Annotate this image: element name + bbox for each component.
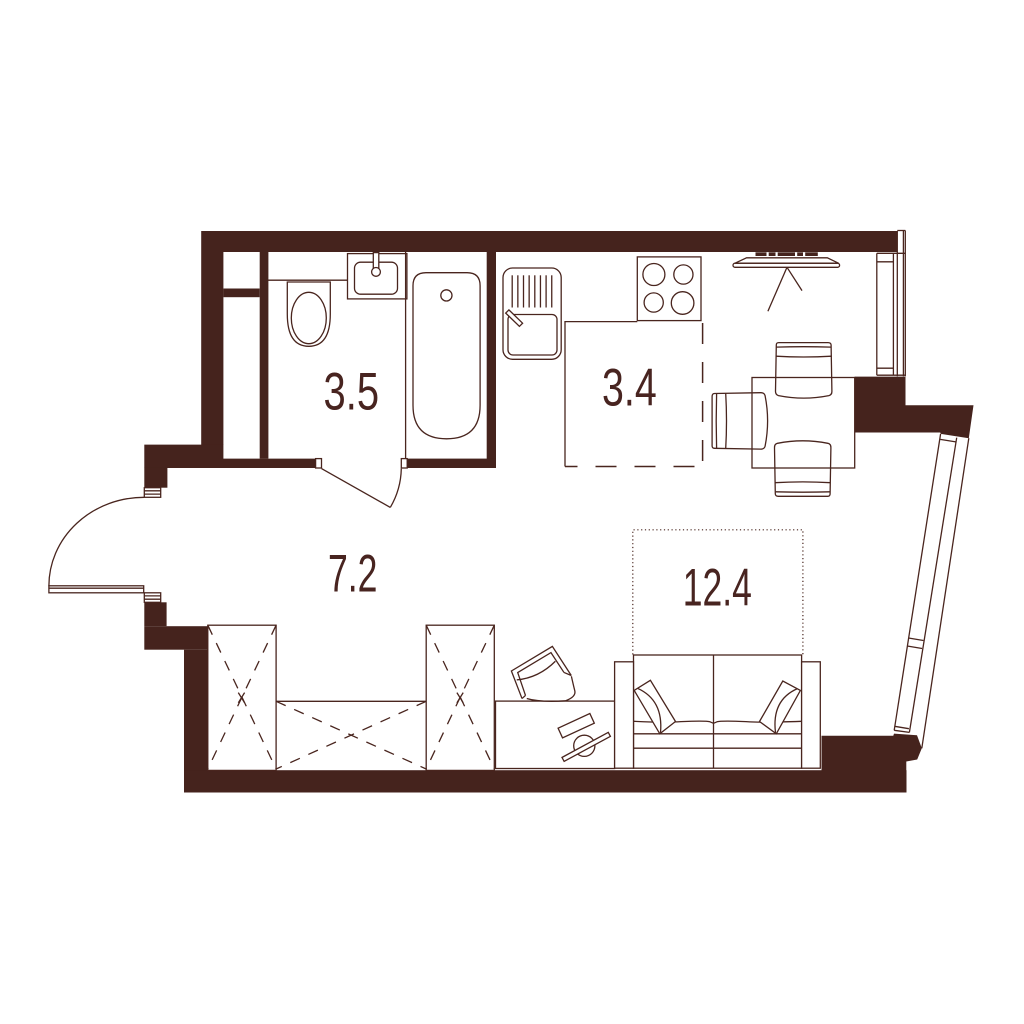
svg-text:3.5: 3.5 (324, 362, 380, 421)
svg-text:7.2: 7.2 (328, 545, 378, 604)
svg-text:12.4: 12.4 (683, 558, 752, 617)
svg-text:3.4: 3.4 (602, 359, 657, 418)
